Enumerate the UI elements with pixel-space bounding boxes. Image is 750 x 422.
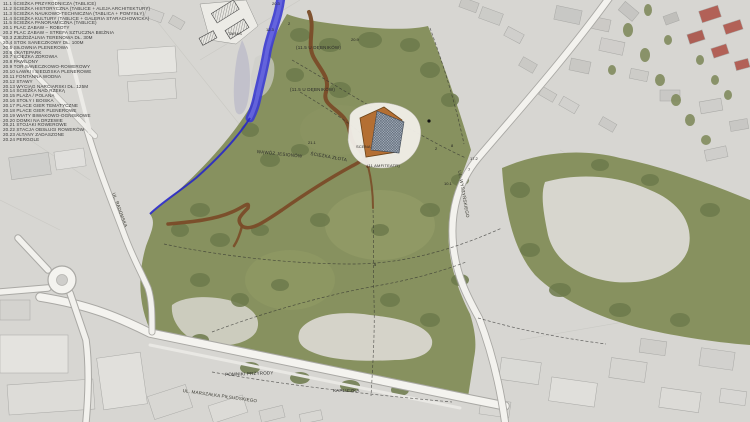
- map-marker: 20.3: [272, 1, 280, 6]
- map-marker: 5: [374, 262, 376, 267]
- poi-dot: [427, 119, 430, 122]
- park-masterplan-map: 11.1 ŚCIEŻKA PRZYRODNICZA (TABLICE) 11.2…: [0, 0, 750, 422]
- map-marker: 8: [451, 143, 453, 148]
- map-marker: 2: [435, 146, 437, 151]
- map-marker: 20.9: [351, 37, 359, 42]
- map-marker: 2: [288, 21, 290, 26]
- map-marker: 7: [468, 167, 470, 172]
- label-taras: TARAS: [228, 31, 242, 36]
- legend-panel: 11.1 ŚCIEŻKA PRZYRODNICZA (TABLICE) 11.2…: [3, 2, 173, 143]
- label-kapliczka: KAPLICZKA: [333, 388, 360, 393]
- map-marker: 12.3: [266, 27, 274, 32]
- map-marker: 17.2: [470, 156, 478, 161]
- label-u-debnikow-2: (11.5 U DĘBNIKÓW): [290, 87, 335, 92]
- legend-item: 20.24 PERGOLE: [3, 138, 173, 143]
- map-marker: 21.1: [308, 140, 316, 145]
- label-scena: SCENA: [356, 144, 371, 149]
- label-amfiteatr: (11 AMFITEATR): [367, 163, 400, 168]
- label-u-debnikow-1: (11.5 U DĘBNIKÓW): [296, 45, 341, 50]
- map-marker: 10.1: [444, 181, 452, 186]
